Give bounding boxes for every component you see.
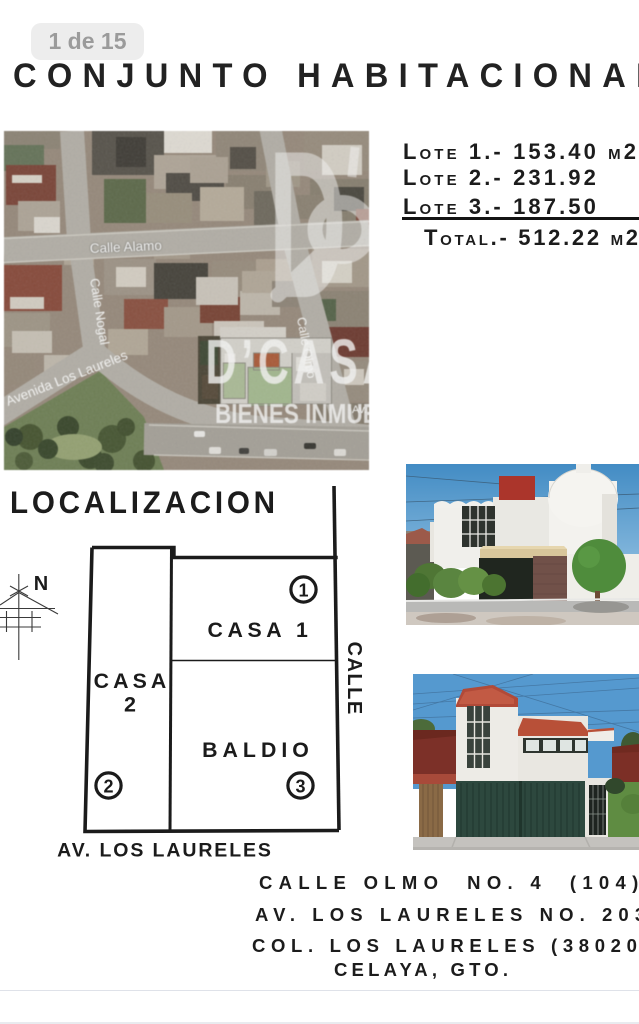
svg-text:1: 1 [298,581,308,601]
svg-text:AV. LOS LAURELES: AV. LOS LAURELES [57,840,273,861]
svg-text:2: 2 [103,777,113,797]
svg-text:BALDIO: BALDIO [202,738,314,762]
svg-text:CALLE: CALLE [343,642,365,716]
svg-text:CASA: CASA [94,669,171,693]
svg-text:3: 3 [295,777,305,797]
svg-text:N: N [34,573,48,595]
svg-text:2: 2 [124,693,136,717]
svg-text:CASA 1: CASA 1 [208,618,313,642]
